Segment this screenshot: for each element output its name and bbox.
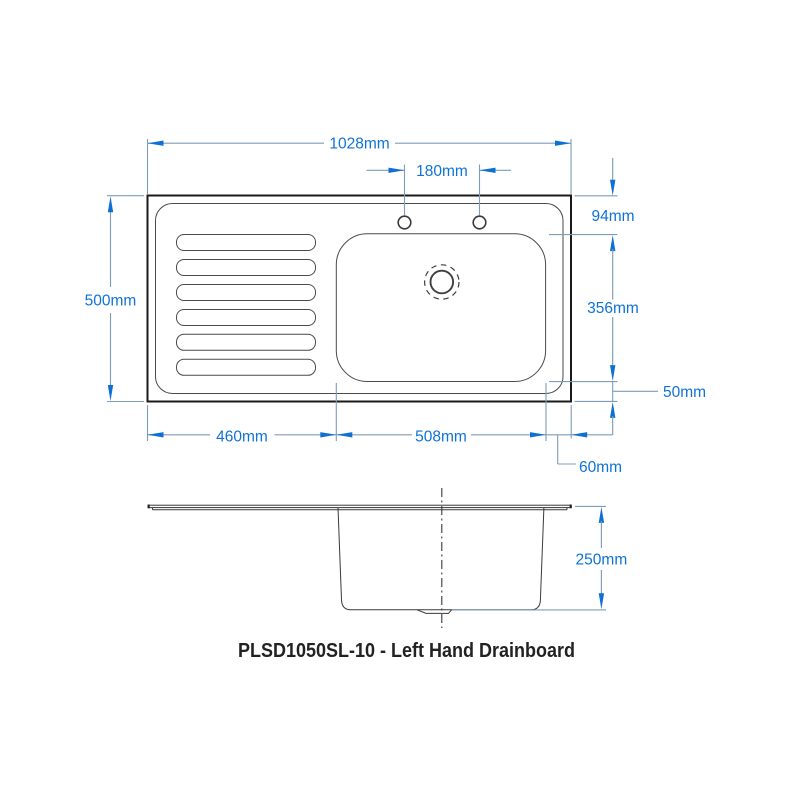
svg-text:500mm: 500mm: [85, 293, 137, 310]
svg-text:180mm: 180mm: [416, 163, 468, 180]
svg-text:94mm: 94mm: [591, 208, 634, 225]
svg-text:250mm: 250mm: [576, 552, 628, 569]
svg-text:1028mm: 1028mm: [329, 136, 389, 153]
svg-text:PLSD1050SL-10 - Left Hand Drai: PLSD1050SL-10 - Left Hand Drainboard: [238, 639, 575, 662]
svg-text:356mm: 356mm: [587, 300, 639, 317]
svg-text:60mm: 60mm: [579, 459, 622, 476]
svg-text:508mm: 508mm: [415, 428, 467, 445]
svg-text:50mm: 50mm: [663, 384, 706, 401]
svg-text:460mm: 460mm: [216, 428, 268, 445]
